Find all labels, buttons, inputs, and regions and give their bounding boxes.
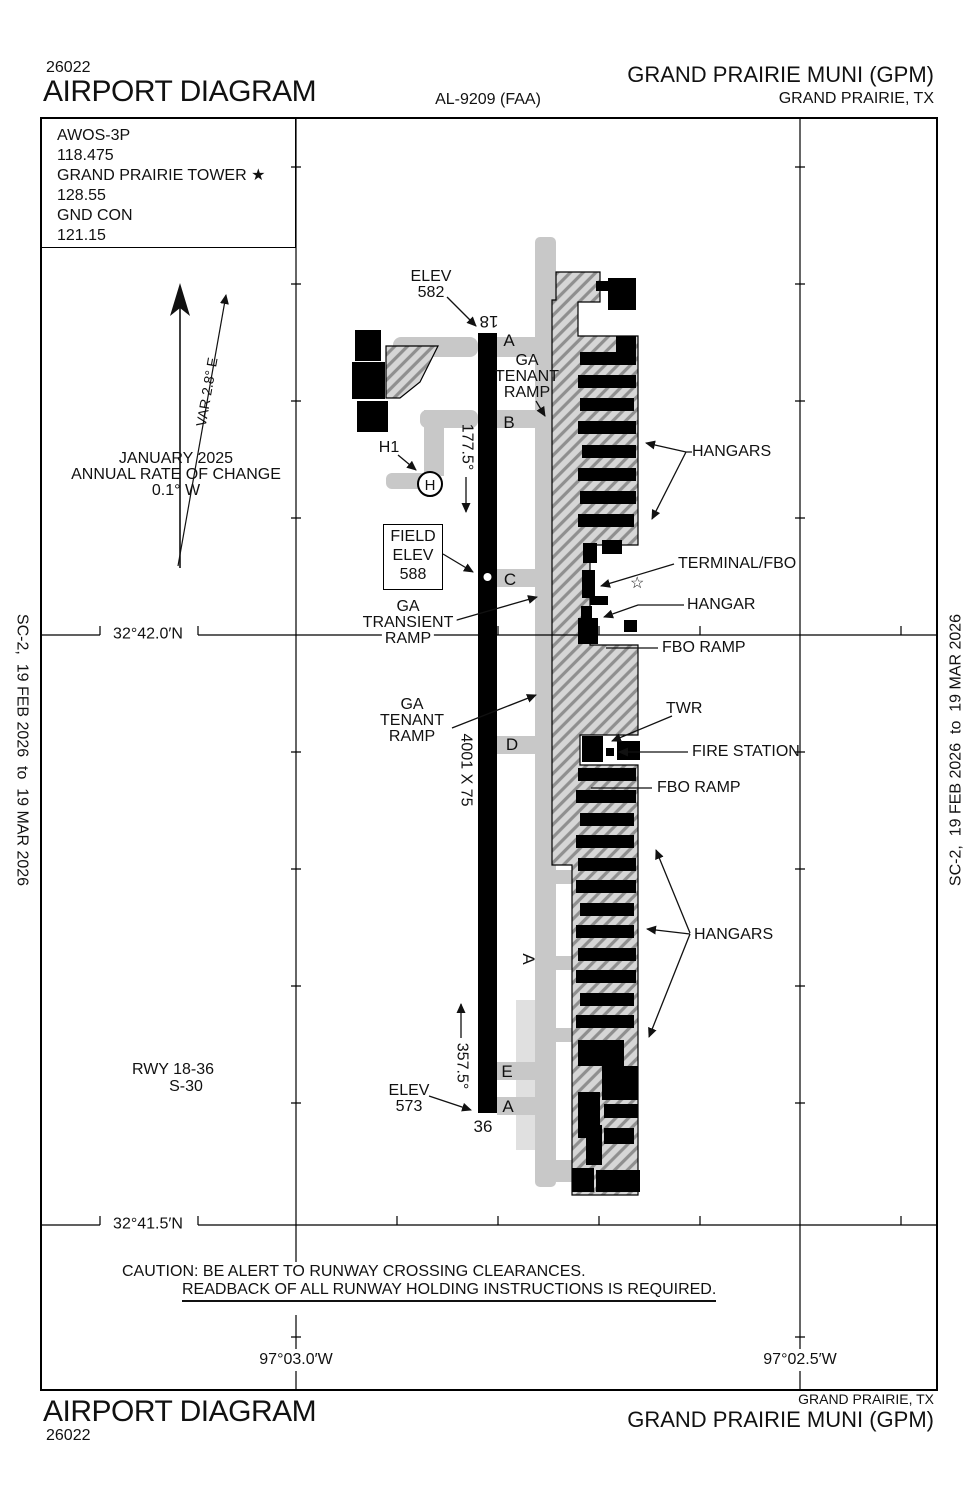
field-elev-line: ELEV xyxy=(384,546,442,565)
taxiway-d-label: D xyxy=(506,736,518,754)
airport-name-bottom: GRAND PRAIRIE MUNI (GPM) xyxy=(627,1408,934,1431)
taxiway-b-label: B xyxy=(503,414,514,432)
comm-line: 128.55 xyxy=(57,186,295,206)
annual-rate-value: 0.1° W xyxy=(152,483,200,500)
caution-line-1: CAUTION: BE ALERT TO RUNWAY CROSSING CLE… xyxy=(122,1264,586,1281)
comm-line: AWOS-3P xyxy=(57,126,295,146)
runway-number-18: 18 xyxy=(480,312,499,330)
comm-frequencies-box: AWOS-3P 118.475 GRAND PRAIRIE TOWER ★ 12… xyxy=(40,119,296,248)
field-elevation-box: FIELD ELEV 588 xyxy=(383,524,443,590)
fbo-ramp-north-label: FBO RAMP xyxy=(662,640,746,657)
ga-tenant-ramp-north: RAMP xyxy=(504,385,550,402)
comm-line: GRAND PRAIRIE TOWER ★ xyxy=(57,166,295,186)
runway-heading-south: 177.5° xyxy=(458,424,475,470)
caution-line-2: READBACK OF ALL RUNWAY HOLDING INSTRUCTI… xyxy=(182,1282,716,1302)
flag-star-icon: ☆ xyxy=(630,576,644,593)
comm-line: GND CON xyxy=(57,206,295,226)
hangars-north-label: HANGARS xyxy=(692,444,771,461)
fire-station-label: FIRE STATION xyxy=(692,744,800,761)
field-elev-line: 588 xyxy=(384,565,442,584)
runway-designation: RWY 18-36 xyxy=(132,1062,214,1079)
taxiway-a-south-label: A xyxy=(502,1098,513,1116)
longitude-west-label: 97°03.0′W xyxy=(256,1352,335,1369)
fbo-ramp-south-label: FBO RAMP xyxy=(657,780,741,797)
latitude-south-label: 32°41.5′N xyxy=(110,1217,186,1234)
airport-diagram-page: 26022 AIRPORT DIAGRAM AL-9209 (FAA) GRAN… xyxy=(0,0,978,1500)
runway-dimensions: 4001 X 75 xyxy=(457,734,474,807)
field-elev-line: FIELD xyxy=(384,527,442,546)
chart-number-bottom: 26022 xyxy=(46,1428,91,1445)
airport-city-bottom: GRAND PRAIRIE, TX xyxy=(798,1392,934,1407)
elev-south-value: 573 xyxy=(396,1099,423,1116)
edge-note-right: SC-2, 19 FEB 2026 to 19 MAR 2026 xyxy=(949,614,966,886)
airport-name-top: GRAND PRAIRIE MUNI (GPM) xyxy=(627,63,934,86)
ga-transient-ramp: RAMP xyxy=(382,631,434,648)
tower-label: TWR xyxy=(666,701,702,718)
taxiway-e-label: E xyxy=(501,1063,512,1081)
runway-heading-north: 357.5° xyxy=(453,1043,470,1089)
edge-note-left: SC-2, 19 FEB 2026 to 19 MAR 2026 xyxy=(13,614,30,886)
terminal-fbo-label: TERMINAL/FBO xyxy=(678,556,796,573)
helipad-symbol: H xyxy=(417,471,443,497)
page-title-top: AIRPORT DIAGRAM xyxy=(43,76,316,108)
page-title-bottom: AIRPORT DIAGRAM xyxy=(43,1396,316,1428)
comm-line: 121.15 xyxy=(57,226,295,246)
helipad-h1-label: H1 xyxy=(379,440,399,457)
runway-number-36: 36 xyxy=(474,1118,493,1136)
field-elevation-point xyxy=(484,573,492,581)
taxiway-c-label: C xyxy=(504,571,516,589)
elev-north-value: 582 xyxy=(418,285,445,302)
comm-line: 118.475 xyxy=(57,146,295,166)
airport-city-top: GRAND PRAIRIE, TX xyxy=(779,91,934,108)
northwest-ramp-hatched xyxy=(386,346,438,398)
taxiway-a-mid-label: A xyxy=(519,953,537,964)
pavement-classification: S-30 xyxy=(169,1079,203,1096)
hangars-south-label: HANGARS xyxy=(694,927,773,944)
longitude-east-label: 97°02.5′W xyxy=(760,1352,839,1369)
ga-tenant-ramp-south: RAMP xyxy=(389,729,435,746)
hangar-label: HANGAR xyxy=(687,597,755,614)
latitude-north-label: 32°42.0′N xyxy=(110,627,186,644)
al-number: AL-9209 (FAA) xyxy=(435,92,541,109)
taxiway-a-north-label: A xyxy=(503,332,514,350)
runway-18-36-pavement xyxy=(478,333,497,1113)
